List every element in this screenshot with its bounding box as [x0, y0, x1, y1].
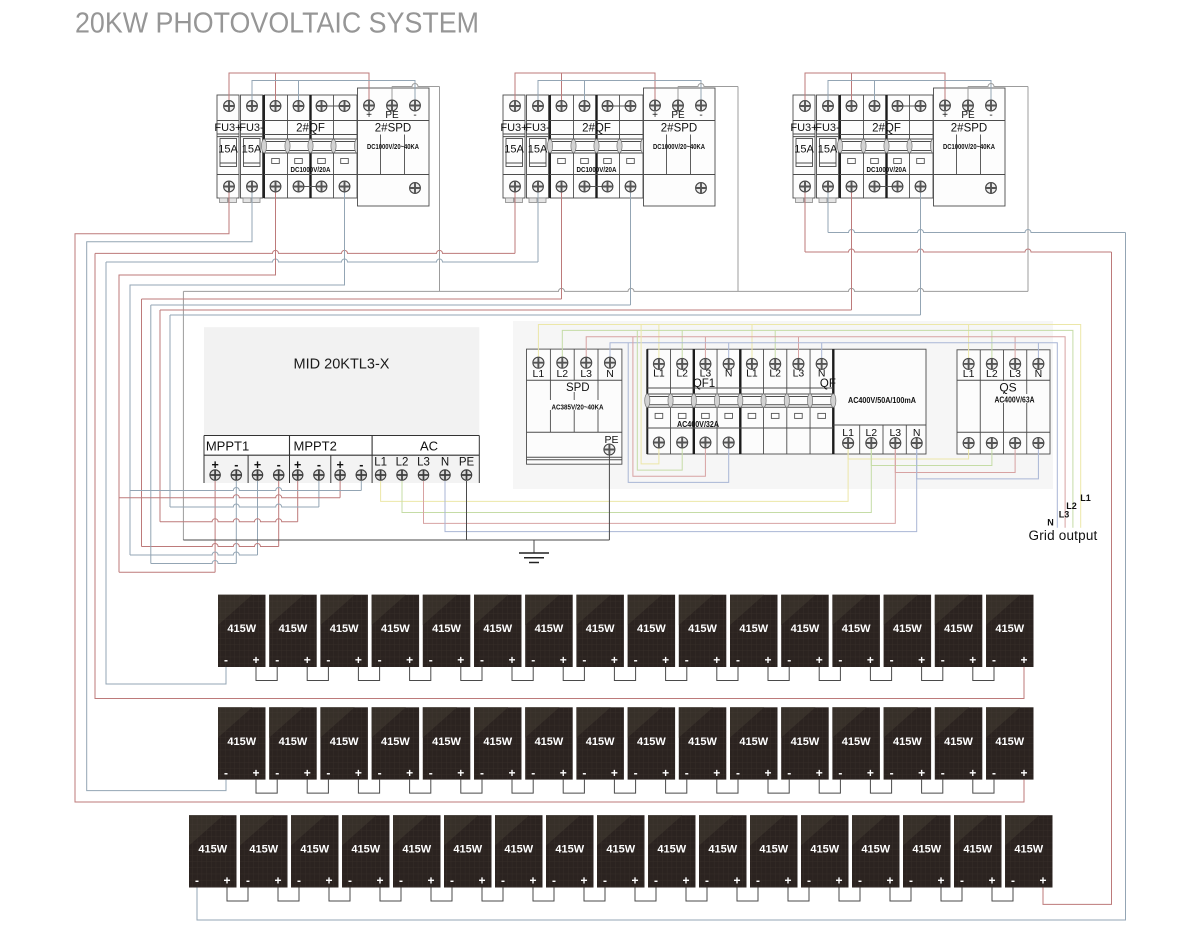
svg-text:+: + — [355, 766, 362, 780]
svg-text:+: + — [406, 653, 413, 667]
svg-text:+: + — [457, 766, 464, 780]
svg-text:-: - — [582, 766, 586, 780]
svg-text:L3: L3 — [580, 368, 592, 380]
svg-text:415W: 415W — [995, 736, 1024, 748]
svg-text:15A: 15A — [242, 144, 262, 156]
svg-text:-: - — [582, 653, 586, 667]
svg-text:415W: 415W — [227, 736, 256, 748]
svg-text:415W: 415W — [351, 844, 380, 856]
svg-text:-: - — [326, 766, 330, 780]
svg-text:DC1000V/20A: DC1000V/20A — [867, 165, 907, 174]
svg-text:+: + — [325, 874, 332, 888]
svg-text:2#SPD: 2#SPD — [661, 123, 697, 135]
svg-text:-: - — [501, 874, 505, 888]
svg-text:-: - — [858, 874, 862, 888]
svg-text:415W: 415W — [381, 623, 410, 635]
svg-text:415W: 415W — [535, 623, 564, 635]
svg-text:2#SPD: 2#SPD — [951, 123, 987, 135]
svg-text:415W: 415W — [963, 844, 992, 856]
svg-text:MPPT2: MPPT2 — [294, 438, 337, 453]
svg-text:N: N — [606, 368, 614, 380]
svg-text:-: - — [685, 653, 689, 667]
svg-text:415W: 415W — [453, 844, 482, 856]
svg-text:+: + — [816, 766, 823, 780]
svg-text:-: - — [736, 766, 740, 780]
svg-text:-: - — [297, 874, 301, 888]
svg-text:DC1000V/20~40KA: DC1000V/20~40KA — [943, 144, 995, 151]
svg-text:L2: L2 — [396, 457, 409, 469]
svg-text:415W: 415W — [842, 623, 871, 635]
svg-text:AC385V/20~40KA: AC385V/20~40KA — [552, 403, 605, 412]
svg-text:+: + — [969, 766, 976, 780]
svg-text:415W: 415W — [198, 844, 227, 856]
svg-text:-: - — [399, 874, 403, 888]
svg-text:+: + — [662, 766, 669, 780]
svg-text:+: + — [937, 874, 944, 888]
svg-text:QF: QF — [820, 378, 836, 390]
svg-text:DC1000V/20A: DC1000V/20A — [291, 165, 331, 174]
svg-text:QS: QS — [999, 381, 1016, 395]
svg-text:-: - — [634, 766, 638, 780]
svg-text:415W: 415W — [432, 623, 461, 635]
svg-text:15A: 15A — [528, 144, 548, 156]
svg-text:L3: L3 — [1009, 368, 1021, 380]
svg-text:N: N — [1035, 368, 1043, 380]
svg-text:415W: 415W — [657, 844, 686, 856]
svg-text:AC400V/50A/100mA: AC400V/50A/100mA — [848, 396, 916, 405]
svg-text:FU3+: FU3+ — [790, 122, 817, 134]
svg-text:415W: 415W — [791, 623, 820, 635]
svg-text:FU3-: FU3- — [239, 122, 264, 134]
svg-text:+: + — [252, 653, 259, 667]
svg-text:415W: 415W — [739, 736, 768, 748]
svg-text:415W: 415W — [893, 623, 922, 635]
svg-text:AC400V/32A: AC400V/32A — [677, 420, 719, 429]
svg-text:15A: 15A — [794, 144, 814, 156]
svg-text:+: + — [764, 653, 771, 667]
svg-text:-: - — [992, 766, 996, 780]
svg-text:+: + — [784, 874, 791, 888]
svg-text:-: - — [413, 110, 416, 121]
svg-text:+: + — [508, 766, 515, 780]
svg-text:+: + — [252, 766, 259, 780]
svg-text:+: + — [223, 874, 230, 888]
svg-text:415W: 415W — [944, 623, 973, 635]
svg-text:-: - — [989, 110, 992, 121]
svg-text:-: - — [941, 653, 945, 667]
svg-text:-: - — [378, 653, 382, 667]
svg-text:+: + — [304, 766, 311, 780]
svg-text:L2: L2 — [556, 368, 568, 380]
svg-text:+: + — [733, 874, 740, 888]
svg-text:+: + — [406, 766, 413, 780]
svg-text:+: + — [886, 874, 893, 888]
svg-text:DC1000V/20~40KA: DC1000V/20~40KA — [653, 144, 705, 151]
svg-text:-: - — [552, 874, 556, 888]
svg-text:-: - — [275, 766, 279, 780]
svg-text:2#QF: 2#QF — [296, 123, 325, 135]
svg-text:415W: 415W — [483, 736, 512, 748]
svg-text:415W: 415W — [944, 736, 973, 748]
svg-text:-: - — [429, 653, 433, 667]
svg-text:FU3+: FU3+ — [500, 122, 527, 134]
svg-text:-: - — [890, 766, 894, 780]
svg-text:+: + — [918, 766, 925, 780]
svg-text:415W: 415W — [249, 844, 278, 856]
svg-text:-: - — [699, 110, 702, 121]
svg-text:L2: L2 — [1066, 501, 1077, 511]
svg-text:415W: 415W — [483, 623, 512, 635]
svg-text:20KW PHOTOVOLTAIC SYSTEM: 20KW PHOTOVOLTAIC SYSTEM — [75, 8, 479, 40]
svg-text:+: + — [1020, 766, 1027, 780]
svg-text:-: - — [787, 766, 791, 780]
svg-text:+: + — [988, 874, 995, 888]
svg-text:415W: 415W — [739, 623, 768, 635]
svg-text:+: + — [816, 653, 823, 667]
svg-text:415W: 415W — [708, 844, 737, 856]
svg-text:415W: 415W — [1014, 844, 1043, 856]
svg-text:+: + — [457, 653, 464, 667]
svg-text:MID 20KTL3-X: MID 20KTL3-X — [294, 357, 390, 373]
svg-text:-: - — [705, 874, 709, 888]
svg-text:L1: L1 — [533, 368, 545, 380]
svg-text:FU3-: FU3- — [525, 122, 550, 134]
svg-text:-: - — [450, 874, 454, 888]
svg-text:-: - — [654, 874, 658, 888]
svg-text:-: - — [531, 766, 535, 780]
svg-text:15A: 15A — [218, 144, 238, 156]
svg-text:L2: L2 — [986, 368, 998, 380]
svg-text:-: - — [890, 653, 894, 667]
svg-text:-: - — [838, 766, 842, 780]
svg-text:-: - — [348, 874, 352, 888]
svg-text:415W: 415W — [995, 623, 1024, 635]
svg-text:415W: 415W — [330, 623, 359, 635]
svg-text:+: + — [304, 653, 311, 667]
svg-text:+: + — [918, 653, 925, 667]
svg-text:-: - — [246, 874, 250, 888]
svg-text:-: - — [909, 874, 913, 888]
svg-text:FU3+: FU3+ — [214, 122, 241, 134]
svg-text:PE: PE — [459, 457, 475, 469]
svg-text:+: + — [713, 766, 720, 780]
svg-text:+: + — [867, 766, 874, 780]
svg-text:+: + — [529, 874, 536, 888]
svg-text:415W: 415W — [555, 844, 584, 856]
svg-text:-: - — [736, 653, 740, 667]
svg-text:-: - — [195, 874, 199, 888]
svg-text:-: - — [634, 653, 638, 667]
svg-text:PE: PE — [961, 110, 975, 121]
svg-text:MPPT1: MPPT1 — [206, 438, 249, 453]
svg-text:415W: 415W — [637, 623, 666, 635]
svg-text:-: - — [960, 874, 964, 888]
svg-text:-: - — [603, 874, 607, 888]
svg-text:QF1: QF1 — [693, 378, 715, 390]
svg-text:+: + — [713, 653, 720, 667]
svg-text:-: - — [838, 653, 842, 667]
svg-text:415W: 415W — [861, 844, 890, 856]
svg-text:2#SPD: 2#SPD — [375, 123, 411, 135]
svg-text:-: - — [378, 766, 382, 780]
svg-text:+: + — [478, 874, 485, 888]
svg-text:-: - — [1011, 874, 1015, 888]
svg-text:415W: 415W — [688, 736, 717, 748]
svg-text:+: + — [652, 110, 658, 121]
svg-text:Grid output: Grid output — [1029, 528, 1098, 543]
svg-text:-: - — [275, 653, 279, 667]
svg-text:415W: 415W — [432, 736, 461, 748]
svg-text:-: - — [326, 653, 330, 667]
svg-text:415W: 415W — [586, 736, 615, 748]
svg-text:L1: L1 — [963, 368, 975, 380]
svg-text:415W: 415W — [842, 736, 871, 748]
svg-text:-: - — [756, 874, 760, 888]
svg-text:AC: AC — [420, 438, 438, 453]
svg-text:15A: 15A — [504, 144, 524, 156]
svg-text:+: + — [611, 653, 618, 667]
svg-text:+: + — [580, 874, 587, 888]
svg-text:-: - — [224, 653, 228, 667]
svg-text:+: + — [508, 653, 515, 667]
svg-text:415W: 415W — [381, 736, 410, 748]
svg-text:415W: 415W — [504, 844, 533, 856]
svg-text:2#QF: 2#QF — [872, 123, 901, 135]
svg-text:415W: 415W — [586, 623, 615, 635]
svg-text:N: N — [441, 457, 449, 469]
svg-text:+: + — [560, 766, 567, 780]
svg-text:+: + — [1020, 653, 1027, 667]
svg-text:+: + — [867, 653, 874, 667]
svg-text:L1: L1 — [1080, 493, 1091, 503]
svg-text:-: - — [480, 766, 484, 780]
svg-text:415W: 415W — [893, 736, 922, 748]
svg-text:415W: 415W — [759, 844, 788, 856]
svg-text:+: + — [427, 874, 434, 888]
svg-text:-: - — [992, 653, 996, 667]
svg-text:+: + — [560, 653, 567, 667]
svg-text:+: + — [366, 110, 372, 121]
svg-text:-: - — [807, 874, 811, 888]
svg-text:+: + — [274, 874, 281, 888]
svg-text:+: + — [376, 874, 383, 888]
svg-text:2#QF: 2#QF — [582, 123, 611, 135]
svg-text:AC400V/63A: AC400V/63A — [995, 396, 1035, 405]
svg-text:N: N — [1047, 518, 1054, 528]
svg-text:FU3-: FU3- — [815, 122, 840, 134]
svg-text:415W: 415W — [810, 844, 839, 856]
svg-text:-: - — [429, 766, 433, 780]
svg-text:+: + — [764, 766, 771, 780]
svg-text:-: - — [224, 766, 228, 780]
svg-text:SPD: SPD — [566, 382, 590, 394]
svg-text:-: - — [941, 766, 945, 780]
svg-text:L3: L3 — [1059, 510, 1070, 520]
svg-text:415W: 415W — [535, 736, 564, 748]
svg-text:-: - — [685, 766, 689, 780]
svg-text:DC1000V/20~40KA: DC1000V/20~40KA — [367, 144, 419, 151]
svg-text:415W: 415W — [227, 623, 256, 635]
svg-text:-: - — [787, 653, 791, 667]
svg-text:+: + — [835, 874, 842, 888]
svg-text:415W: 415W — [402, 844, 431, 856]
svg-text:+: + — [355, 653, 362, 667]
svg-text:L3: L3 — [417, 457, 430, 469]
svg-text:DC1000V/20A: DC1000V/20A — [577, 165, 617, 174]
svg-text:415W: 415W — [300, 844, 329, 856]
svg-text:+: + — [631, 874, 638, 888]
svg-text:15A: 15A — [818, 144, 838, 156]
svg-text:415W: 415W — [606, 844, 635, 856]
svg-text:L1: L1 — [374, 457, 387, 469]
svg-text:+: + — [1039, 874, 1046, 888]
svg-text:415W: 415W — [279, 623, 308, 635]
svg-text:415W: 415W — [912, 844, 941, 856]
svg-text:PE: PE — [671, 110, 685, 121]
svg-text:+: + — [611, 766, 618, 780]
svg-text:415W: 415W — [637, 736, 666, 748]
svg-text:+: + — [662, 653, 669, 667]
svg-text:415W: 415W — [688, 623, 717, 635]
svg-text:415W: 415W — [791, 736, 820, 748]
svg-text:-: - — [480, 653, 484, 667]
svg-text:-: - — [531, 653, 535, 667]
svg-text:415W: 415W — [279, 736, 308, 748]
svg-text:415W: 415W — [330, 736, 359, 748]
svg-text:PE: PE — [385, 110, 399, 121]
svg-text:+: + — [969, 653, 976, 667]
svg-text:+: + — [942, 110, 948, 121]
svg-text:+: + — [682, 874, 689, 888]
